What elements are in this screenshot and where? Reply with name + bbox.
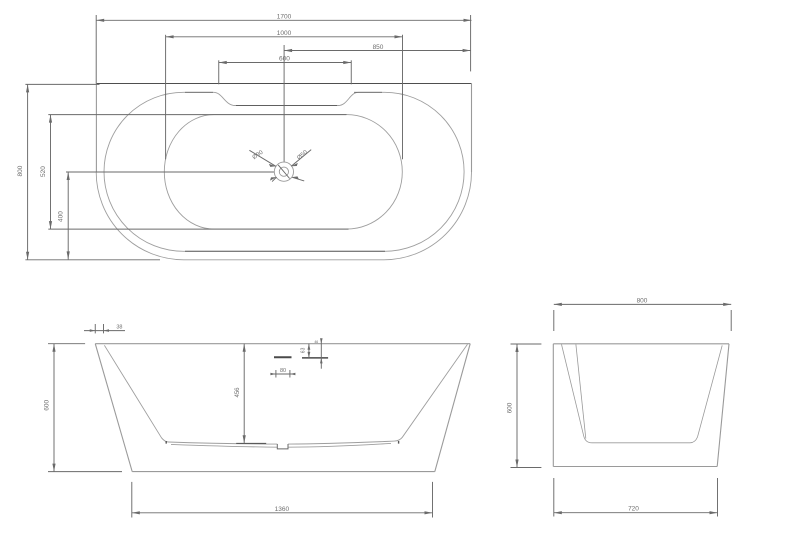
svg-text:46: 46 <box>314 340 318 344</box>
svg-text:400: 400 <box>58 211 65 222</box>
svg-text:520: 520 <box>40 166 47 177</box>
svg-text:38: 38 <box>116 325 122 331</box>
svg-text:600: 600 <box>43 399 50 410</box>
svg-text:600: 600 <box>279 56 290 63</box>
svg-text:800: 800 <box>17 165 24 176</box>
svg-text:1700: 1700 <box>277 13 292 20</box>
svg-text:1360: 1360 <box>275 506 290 513</box>
svg-text:720: 720 <box>628 506 639 513</box>
svg-text:1000: 1000 <box>277 30 292 37</box>
svg-text:456: 456 <box>235 387 241 398</box>
svg-text:80: 80 <box>280 368 286 374</box>
svg-text:63: 63 <box>300 347 306 353</box>
svg-text:850: 850 <box>373 44 384 51</box>
svg-text:600: 600 <box>506 402 513 413</box>
svg-text:800: 800 <box>637 297 648 304</box>
svg-text:Ø50: Ø50 <box>296 149 309 161</box>
svg-text:Ø90: Ø90 <box>252 149 265 161</box>
